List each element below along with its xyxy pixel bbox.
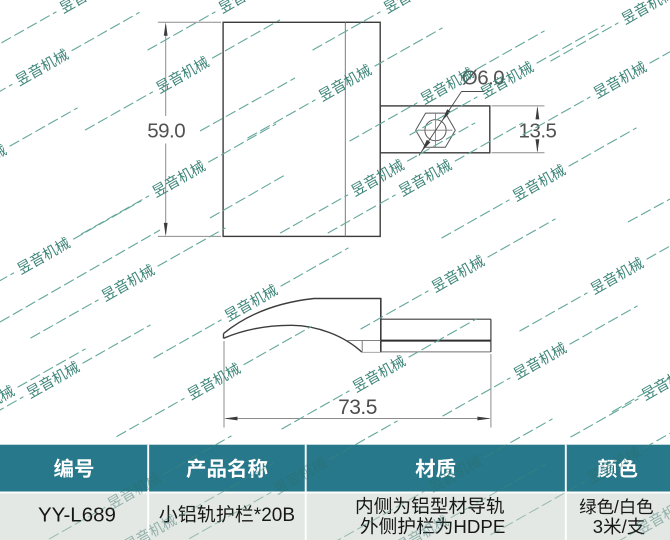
svg-text:73.5: 73.5 — [338, 396, 377, 419]
svg-text:59.0: 59.0 — [147, 120, 185, 143]
svg-text:*20B: *20B — [254, 505, 295, 526]
svg-text:HDPE: HDPE — [453, 516, 505, 537]
svg-text:13.5: 13.5 — [519, 120, 557, 143]
svg-text:/: / — [622, 516, 628, 537]
svg-text:/: / — [614, 497, 619, 517]
svg-text:3: 3 — [593, 516, 603, 537]
